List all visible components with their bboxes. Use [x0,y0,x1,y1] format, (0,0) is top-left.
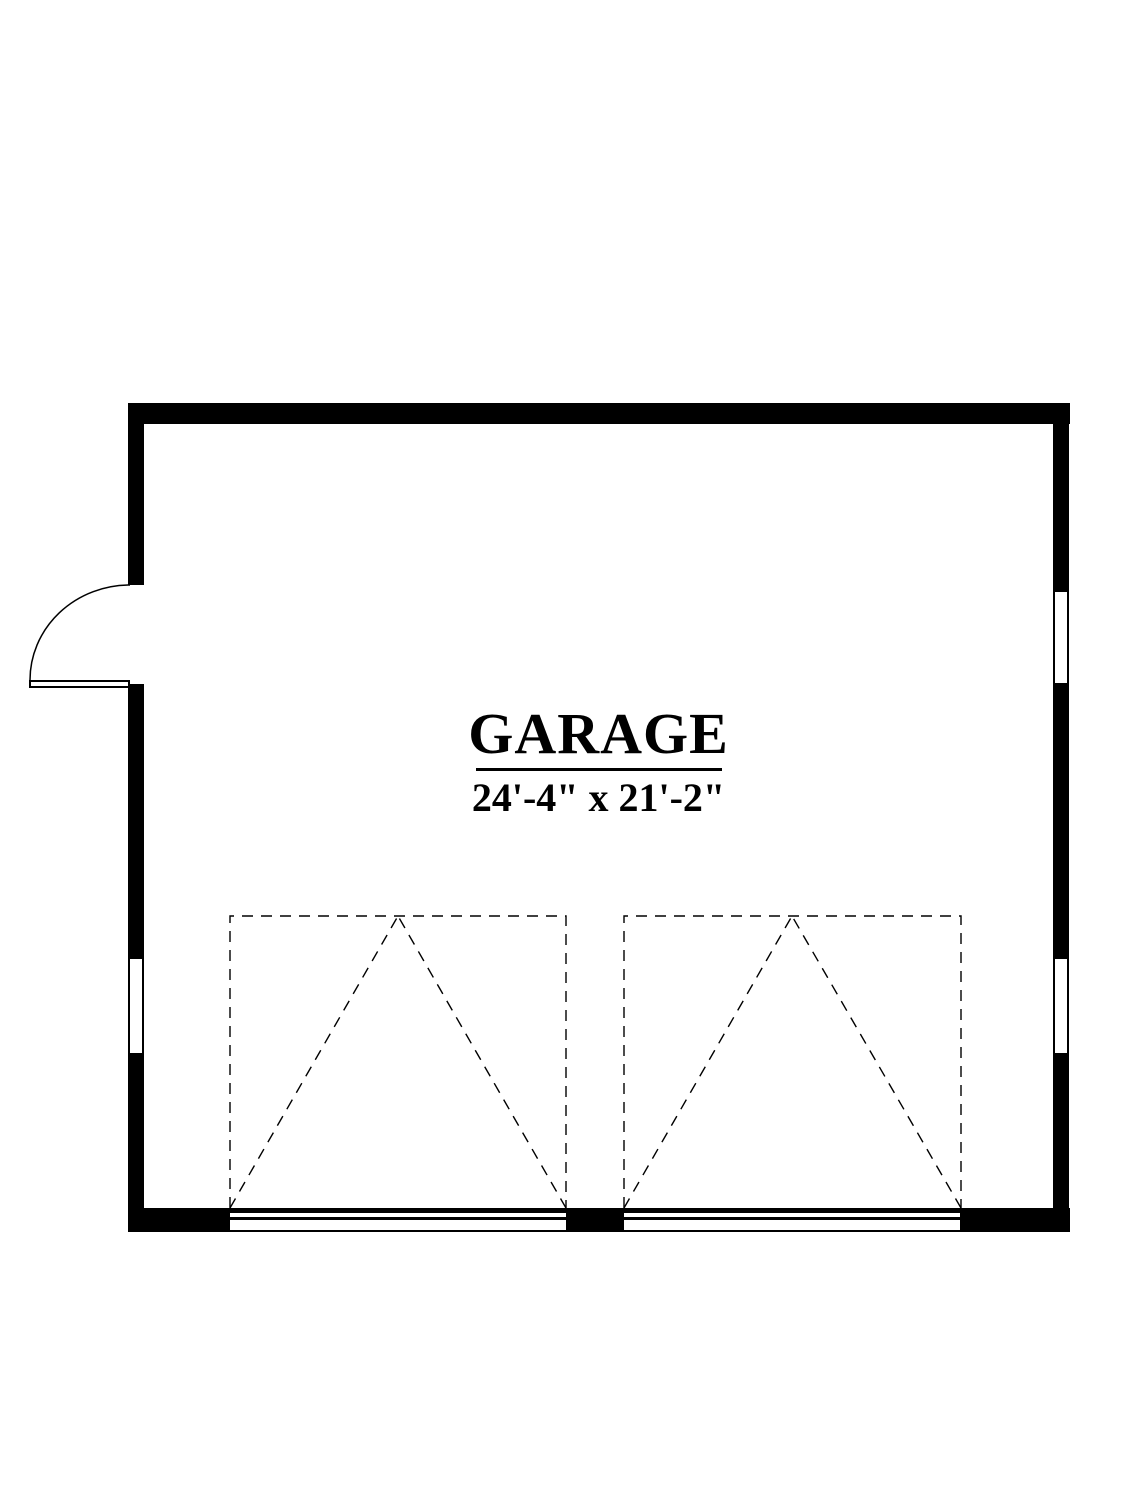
room-title: GARAGE [144,705,1053,763]
room-label-block: GARAGE 24'-4" x 21'-2" [144,705,1053,818]
garage-door-2-swing-diagonals [624,916,961,1208]
garage-door-1-dashed-outline [230,916,566,1208]
room-dimensions: 24'-4" x 21'-2" [144,778,1053,818]
garage-door-1-swing-diagonals [230,916,566,1208]
entry-door-swing-arc [30,585,130,680]
garage-door-2-dashed-outline [624,916,961,1208]
room-title-underline [476,768,722,771]
floor-plan-canvas: GARAGE 24'-4" x 21'-2" [0,0,1123,1498]
